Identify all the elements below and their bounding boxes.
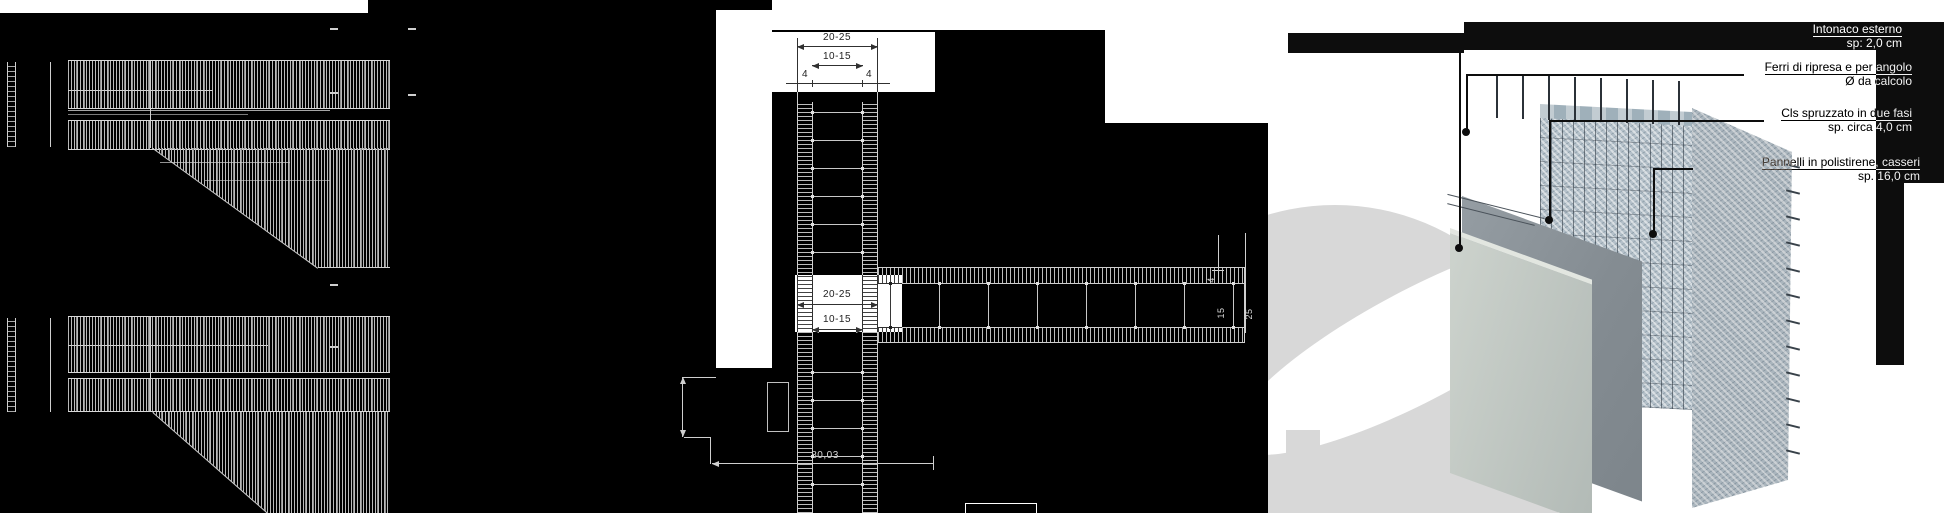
dim-line: [797, 46, 878, 47]
dim-ext-line: [1218, 235, 1219, 283]
label-bar-left: [1288, 33, 1464, 53]
label-pannelli-detail: sp. 16,0 cm: [1858, 169, 1920, 183]
wall-line: [878, 283, 1245, 284]
wall-tie: [1233, 284, 1234, 327]
label-pannelli: Pannelli in polistirene, casseri sp. 16,…: [1620, 156, 1920, 183]
dim-total-top: 20-25: [797, 32, 877, 43]
label-cls: Cls spruzzato in due fasi sp. circa 4,0 …: [1612, 107, 1912, 134]
leader-line-intonaco: [1459, 50, 1461, 248]
dim-arrow: [856, 327, 863, 333]
label-intonaco-title: Intonaco esterno: [1813, 23, 1902, 37]
wall-concrete-layer: [878, 268, 1244, 283]
dim-total-mid: 20-25: [797, 289, 877, 300]
dim-line: [797, 304, 878, 305]
label-ferri: Ferri di ripresa e per angolo Ø da calco…: [1612, 61, 1912, 88]
dim-core-mid: 10-15: [812, 314, 862, 325]
dim-line: [712, 463, 934, 464]
label-pannelli-title: Pannelli in polistirene, casseri: [1762, 156, 1920, 170]
dim-end-layer: 4: [1206, 270, 1217, 290]
wall-tie: [813, 428, 862, 429]
leader-dot: [1649, 230, 1657, 238]
dim-line: [786, 83, 890, 84]
label-ferri-title: Ferri di ripresa e per angolo: [1765, 61, 1912, 75]
dim-tick: [933, 456, 934, 470]
wall-tie: [813, 456, 862, 457]
wall-tie: [1135, 284, 1136, 327]
rebar-rod: [1496, 74, 1498, 118]
rebar-rod: [1522, 75, 1524, 119]
label-intonaco-detail: sp: 2,0 cm: [1847, 36, 1902, 50]
wall-concrete-layer: [878, 328, 1244, 342]
right-black-column-narrow: [1876, 183, 1904, 365]
step-line: [710, 437, 711, 464]
dim-arrow: [712, 461, 719, 467]
drawing-sheet: 20-25 10-15 4 4 20-25 10-15 80,03: [0, 0, 1944, 513]
wall-tie: [890, 284, 891, 327]
wall-tie: [1184, 284, 1185, 327]
dim-arrow: [812, 327, 819, 333]
rebar-rod: [1600, 78, 1602, 122]
wall-tie: [813, 112, 862, 113]
dim-line-vertical: [682, 377, 683, 437]
dim-arrow: [797, 302, 804, 308]
dim-side-right: 4: [862, 69, 876, 80]
label-cls-detail: sp. circa 4,0 cm: [1828, 120, 1912, 134]
dim-side-left: 4: [798, 69, 812, 80]
wall-tie: [1086, 284, 1087, 327]
wall-tie: [988, 284, 989, 327]
dim-tick: [797, 80, 798, 87]
wall-tie: [813, 224, 862, 225]
dim-arrow: [797, 44, 804, 50]
dim-tick: [862, 80, 863, 87]
leader-line-cls: [1549, 120, 1551, 220]
label-intonaco: Intonaco esterno sp: 2,0 cm: [1600, 23, 1902, 50]
detail-bracket: [767, 382, 789, 432]
step-line: [684, 437, 711, 438]
wall-tie: [813, 196, 862, 197]
rebar-rod: [1548, 76, 1550, 120]
rebar-rod: [1574, 77, 1576, 121]
leader-line-ferri: [1466, 74, 1468, 132]
dim-ext-line: [877, 38, 878, 102]
dim-arrow: [680, 430, 686, 437]
label-ferri-detail: Ø da calcolo: [1845, 74, 1912, 88]
dim-tick: [812, 80, 813, 87]
leader-dot: [1545, 216, 1553, 224]
corner-detail: 20-25 10-15 4 4 20-25 10-15 80,03: [0, 0, 1268, 513]
leader-dot: [1462, 128, 1470, 136]
label-cls-title: Cls spruzzato in due fasi: [1781, 107, 1912, 121]
wall-tie: [813, 252, 862, 253]
wall-tie: [939, 284, 940, 327]
dim-arrow: [680, 377, 686, 384]
wall-tie: [813, 400, 862, 401]
step-line: [682, 377, 716, 378]
wall-tie: [813, 372, 862, 373]
wall-tie: [813, 140, 862, 141]
wall-line: [878, 342, 1245, 343]
wall-tie: [1037, 284, 1038, 327]
wall-tie: [813, 168, 862, 169]
dim-end-total: 25: [1244, 294, 1255, 334]
wall-tie: [813, 484, 862, 485]
dim-end-core: 15: [1216, 296, 1227, 330]
watermark-stem: [1286, 430, 1320, 513]
scale-bar: [965, 503, 1037, 513]
dim-tick: [877, 80, 878, 87]
leader-dot: [1455, 244, 1463, 252]
dim-arrow: [871, 302, 878, 308]
dim-arrow: [812, 63, 819, 69]
dim-core-top: 10-15: [812, 51, 862, 62]
